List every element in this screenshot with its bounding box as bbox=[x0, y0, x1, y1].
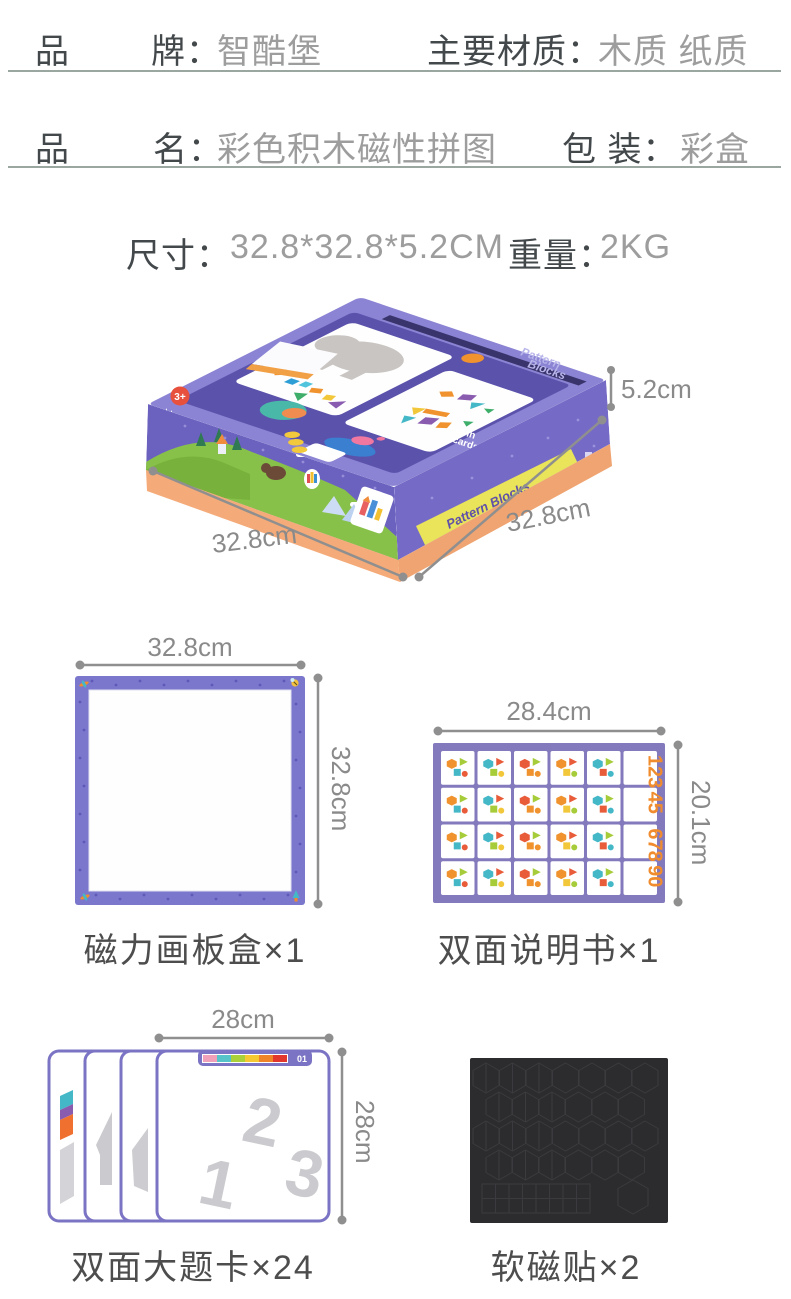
dim-dot bbox=[338, 1216, 347, 1225]
divider-line-2 bbox=[8, 166, 781, 168]
manual-figure-piece bbox=[563, 806, 570, 813]
star-speck bbox=[299, 787, 302, 790]
star-speck bbox=[143, 894, 146, 897]
manual-cell bbox=[551, 825, 585, 859]
manual-figure-piece bbox=[571, 881, 577, 887]
manual-figure-piece bbox=[527, 769, 534, 776]
star-speck bbox=[187, 680, 190, 683]
magnet-caption: 软磁贴×2 bbox=[446, 1240, 686, 1289]
manual-figure-piece bbox=[454, 769, 461, 776]
manual-figure-piece bbox=[527, 879, 534, 886]
divider-line-1 bbox=[8, 70, 781, 72]
manual-figure-piece bbox=[462, 808, 468, 814]
manual-cell bbox=[514, 751, 548, 785]
dim-dot bbox=[657, 727, 666, 736]
size-label: 尺寸： bbox=[126, 228, 231, 277]
manual-cell bbox=[587, 751, 621, 785]
product-box-figure: 3+ Pattern Blocks Put in cards bbox=[30, 288, 710, 600]
star-speck bbox=[295, 703, 298, 706]
product-name-value: 彩色积木磁性拼图 bbox=[217, 122, 497, 171]
manual-figure-piece bbox=[535, 808, 541, 814]
dim-dot bbox=[76, 661, 85, 670]
manual-cell bbox=[551, 861, 585, 895]
dim-dot bbox=[674, 741, 683, 750]
magnet-figure bbox=[455, 1048, 690, 1233]
strip-segment bbox=[245, 1055, 259, 1062]
manual-figure-piece bbox=[462, 844, 468, 850]
star-speck bbox=[139, 680, 142, 683]
manual-figure-piece bbox=[490, 769, 497, 776]
manual-figure-piece bbox=[600, 879, 607, 886]
star-speck bbox=[283, 680, 286, 683]
star-speck bbox=[211, 684, 214, 687]
weight-value: 2KG bbox=[600, 228, 671, 267]
dim-dot bbox=[297, 661, 306, 670]
star-speck bbox=[239, 894, 242, 897]
manual-cell bbox=[478, 751, 512, 785]
star-speck bbox=[83, 841, 86, 844]
dim-dot bbox=[399, 573, 408, 582]
manual-cell bbox=[478, 825, 512, 859]
star-speck bbox=[295, 759, 298, 762]
manual-cell bbox=[478, 861, 512, 895]
manual-figure-piece bbox=[600, 806, 607, 813]
manual-figure-piece bbox=[563, 879, 570, 886]
manual-cell bbox=[551, 788, 585, 822]
star-speck bbox=[79, 813, 82, 816]
height-dim-label: 5.2cm bbox=[621, 374, 692, 404]
brand-label-char2: 牌： bbox=[151, 24, 221, 73]
manual-figure-piece bbox=[527, 806, 534, 813]
manual-figure-piece bbox=[571, 808, 577, 814]
manual-figure-piece bbox=[498, 881, 504, 887]
manual-figure: 28.4cm 1234567890 20.1cm bbox=[410, 692, 722, 920]
manual-cell bbox=[441, 861, 475, 895]
star-speck bbox=[115, 684, 118, 687]
manual-cell bbox=[551, 751, 585, 785]
star-speck bbox=[299, 843, 302, 846]
package-value: 彩盒 bbox=[680, 122, 750, 171]
manual-figure-piece bbox=[563, 842, 570, 849]
strip-segment bbox=[273, 1055, 287, 1062]
board-figure: 32.8cm 32.8cm bbox=[40, 628, 370, 920]
manual-right-dim-label: 20.1cm bbox=[686, 780, 716, 865]
board-caption: 磁力画板盒×1 bbox=[60, 923, 330, 972]
manual-figure-piece bbox=[490, 879, 497, 886]
size-value: 32.8*32.8*5.2CM bbox=[230, 228, 504, 267]
product-spec-page: 品 牌： 智酷堡 主要材质： 木质 纸质 品 名： 彩色积木磁性拼图 包 装： … bbox=[0, 0, 791, 1299]
cards-top-dim-label: 28cm bbox=[211, 1004, 275, 1034]
star-speck bbox=[79, 869, 82, 872]
manual-figure-piece bbox=[454, 879, 461, 886]
dim-dot bbox=[314, 900, 323, 909]
star-speck bbox=[95, 894, 98, 897]
material-value: 木质 纸质 bbox=[598, 24, 748, 73]
manual-cell bbox=[514, 861, 548, 895]
star-speck bbox=[259, 684, 262, 687]
manual-figure-piece bbox=[527, 842, 534, 849]
dim-dot bbox=[607, 403, 615, 411]
star-speck bbox=[83, 785, 86, 788]
star-speck bbox=[83, 729, 86, 732]
strip-segment bbox=[217, 1055, 231, 1062]
manual-cell bbox=[514, 788, 548, 822]
board-right-dim-label: 32.8cm bbox=[326, 746, 356, 831]
name-label-char2: 名： bbox=[153, 122, 223, 171]
manual-figure-piece bbox=[608, 808, 614, 814]
star-speck bbox=[295, 815, 298, 818]
star-speck bbox=[91, 680, 94, 683]
bear-head bbox=[261, 463, 271, 473]
manual-cell bbox=[587, 788, 621, 822]
manual-cell bbox=[441, 788, 475, 822]
manual-figure-piece bbox=[490, 842, 497, 849]
card-index: 01 bbox=[297, 1054, 307, 1064]
cards-caption: 双面大题卡×24 bbox=[43, 1240, 343, 1289]
star-speck bbox=[79, 757, 82, 760]
manual-figure-piece bbox=[454, 806, 461, 813]
manual-figure-piece bbox=[535, 771, 541, 777]
manual-figure-piece bbox=[600, 842, 607, 849]
star-speck bbox=[287, 894, 290, 897]
star-speck bbox=[167, 898, 170, 901]
dim-dot bbox=[155, 1034, 164, 1043]
dim-dot bbox=[338, 1048, 347, 1057]
manual-figure-piece bbox=[490, 806, 497, 813]
star-speck bbox=[263, 898, 266, 901]
star-speck bbox=[119, 898, 122, 901]
manual-number-cell: 90 bbox=[643, 865, 665, 887]
star-speck bbox=[191, 894, 194, 897]
manual-figure-piece bbox=[571, 844, 577, 850]
manual-cell bbox=[587, 825, 621, 859]
package-label: 包 装： bbox=[562, 122, 677, 171]
material-label: 主要材质： bbox=[427, 24, 602, 73]
manual-figure-piece bbox=[498, 808, 504, 814]
star-speck bbox=[215, 898, 218, 901]
manual-number-cell: 678 bbox=[643, 828, 665, 861]
manual-figure-piece bbox=[608, 771, 614, 777]
dim-dot bbox=[325, 1034, 334, 1043]
board-top-dim-label: 32.8cm bbox=[147, 632, 232, 662]
dim-dot bbox=[149, 467, 158, 476]
dim-dot bbox=[607, 366, 615, 374]
cards-right-dim-label: 28cm bbox=[350, 1100, 380, 1164]
manual-figure-piece bbox=[462, 881, 468, 887]
manual-figure-piece bbox=[498, 844, 504, 850]
name-label-char1: 品 bbox=[35, 122, 70, 171]
back-card-shape bbox=[60, 1142, 74, 1204]
star-speck bbox=[295, 871, 298, 874]
manual-figure-piece bbox=[462, 771, 468, 777]
board-surface bbox=[89, 690, 291, 891]
manual-cell bbox=[441, 825, 475, 859]
manual-figure-piece bbox=[608, 881, 614, 887]
dim-dot bbox=[415, 573, 424, 582]
star-speck bbox=[163, 684, 166, 687]
manual-figure-piece bbox=[535, 844, 541, 850]
manual-figure-piece bbox=[600, 769, 607, 776]
manual-figure-piece bbox=[498, 771, 504, 777]
brand-label-char1: 品 bbox=[35, 24, 70, 73]
dim-dot bbox=[314, 674, 323, 683]
star-speck bbox=[299, 731, 302, 734]
star-speck bbox=[235, 680, 238, 683]
manual-figure-piece bbox=[608, 844, 614, 850]
left-dim-label: 32.8cm bbox=[210, 519, 298, 559]
card-color-strip bbox=[202, 1054, 288, 1063]
dim-dot bbox=[674, 898, 683, 907]
dim-dot bbox=[598, 416, 607, 425]
age-badge-text: 3+ bbox=[174, 392, 186, 403]
brand-value: 智酷堡 bbox=[217, 24, 322, 73]
manual-figure-piece bbox=[454, 842, 461, 849]
star-speck bbox=[79, 701, 82, 704]
strip-segment bbox=[203, 1055, 217, 1062]
manual-top-dim-label: 28.4cm bbox=[506, 696, 591, 726]
castle bbox=[218, 444, 226, 454]
dim-dot bbox=[434, 727, 443, 736]
manual-figure-piece bbox=[571, 771, 577, 777]
weight-label: 重量： bbox=[508, 228, 613, 277]
strip-segment bbox=[231, 1055, 245, 1062]
strip-segment bbox=[259, 1055, 273, 1062]
cards-figure: 28cm 01 1 2 3 28cm bbox=[30, 1003, 380, 1235]
manual-number-cell: 123 bbox=[643, 755, 665, 788]
manual-figure-piece bbox=[563, 769, 570, 776]
manual-figure-piece bbox=[535, 881, 541, 887]
manual-caption: 双面说明书×1 bbox=[429, 923, 669, 972]
manual-cell bbox=[441, 751, 475, 785]
manual-cell bbox=[514, 825, 548, 859]
manual-number-cell: 45 bbox=[643, 792, 665, 814]
manual-cell bbox=[587, 861, 621, 895]
manual-cell bbox=[478, 788, 512, 822]
